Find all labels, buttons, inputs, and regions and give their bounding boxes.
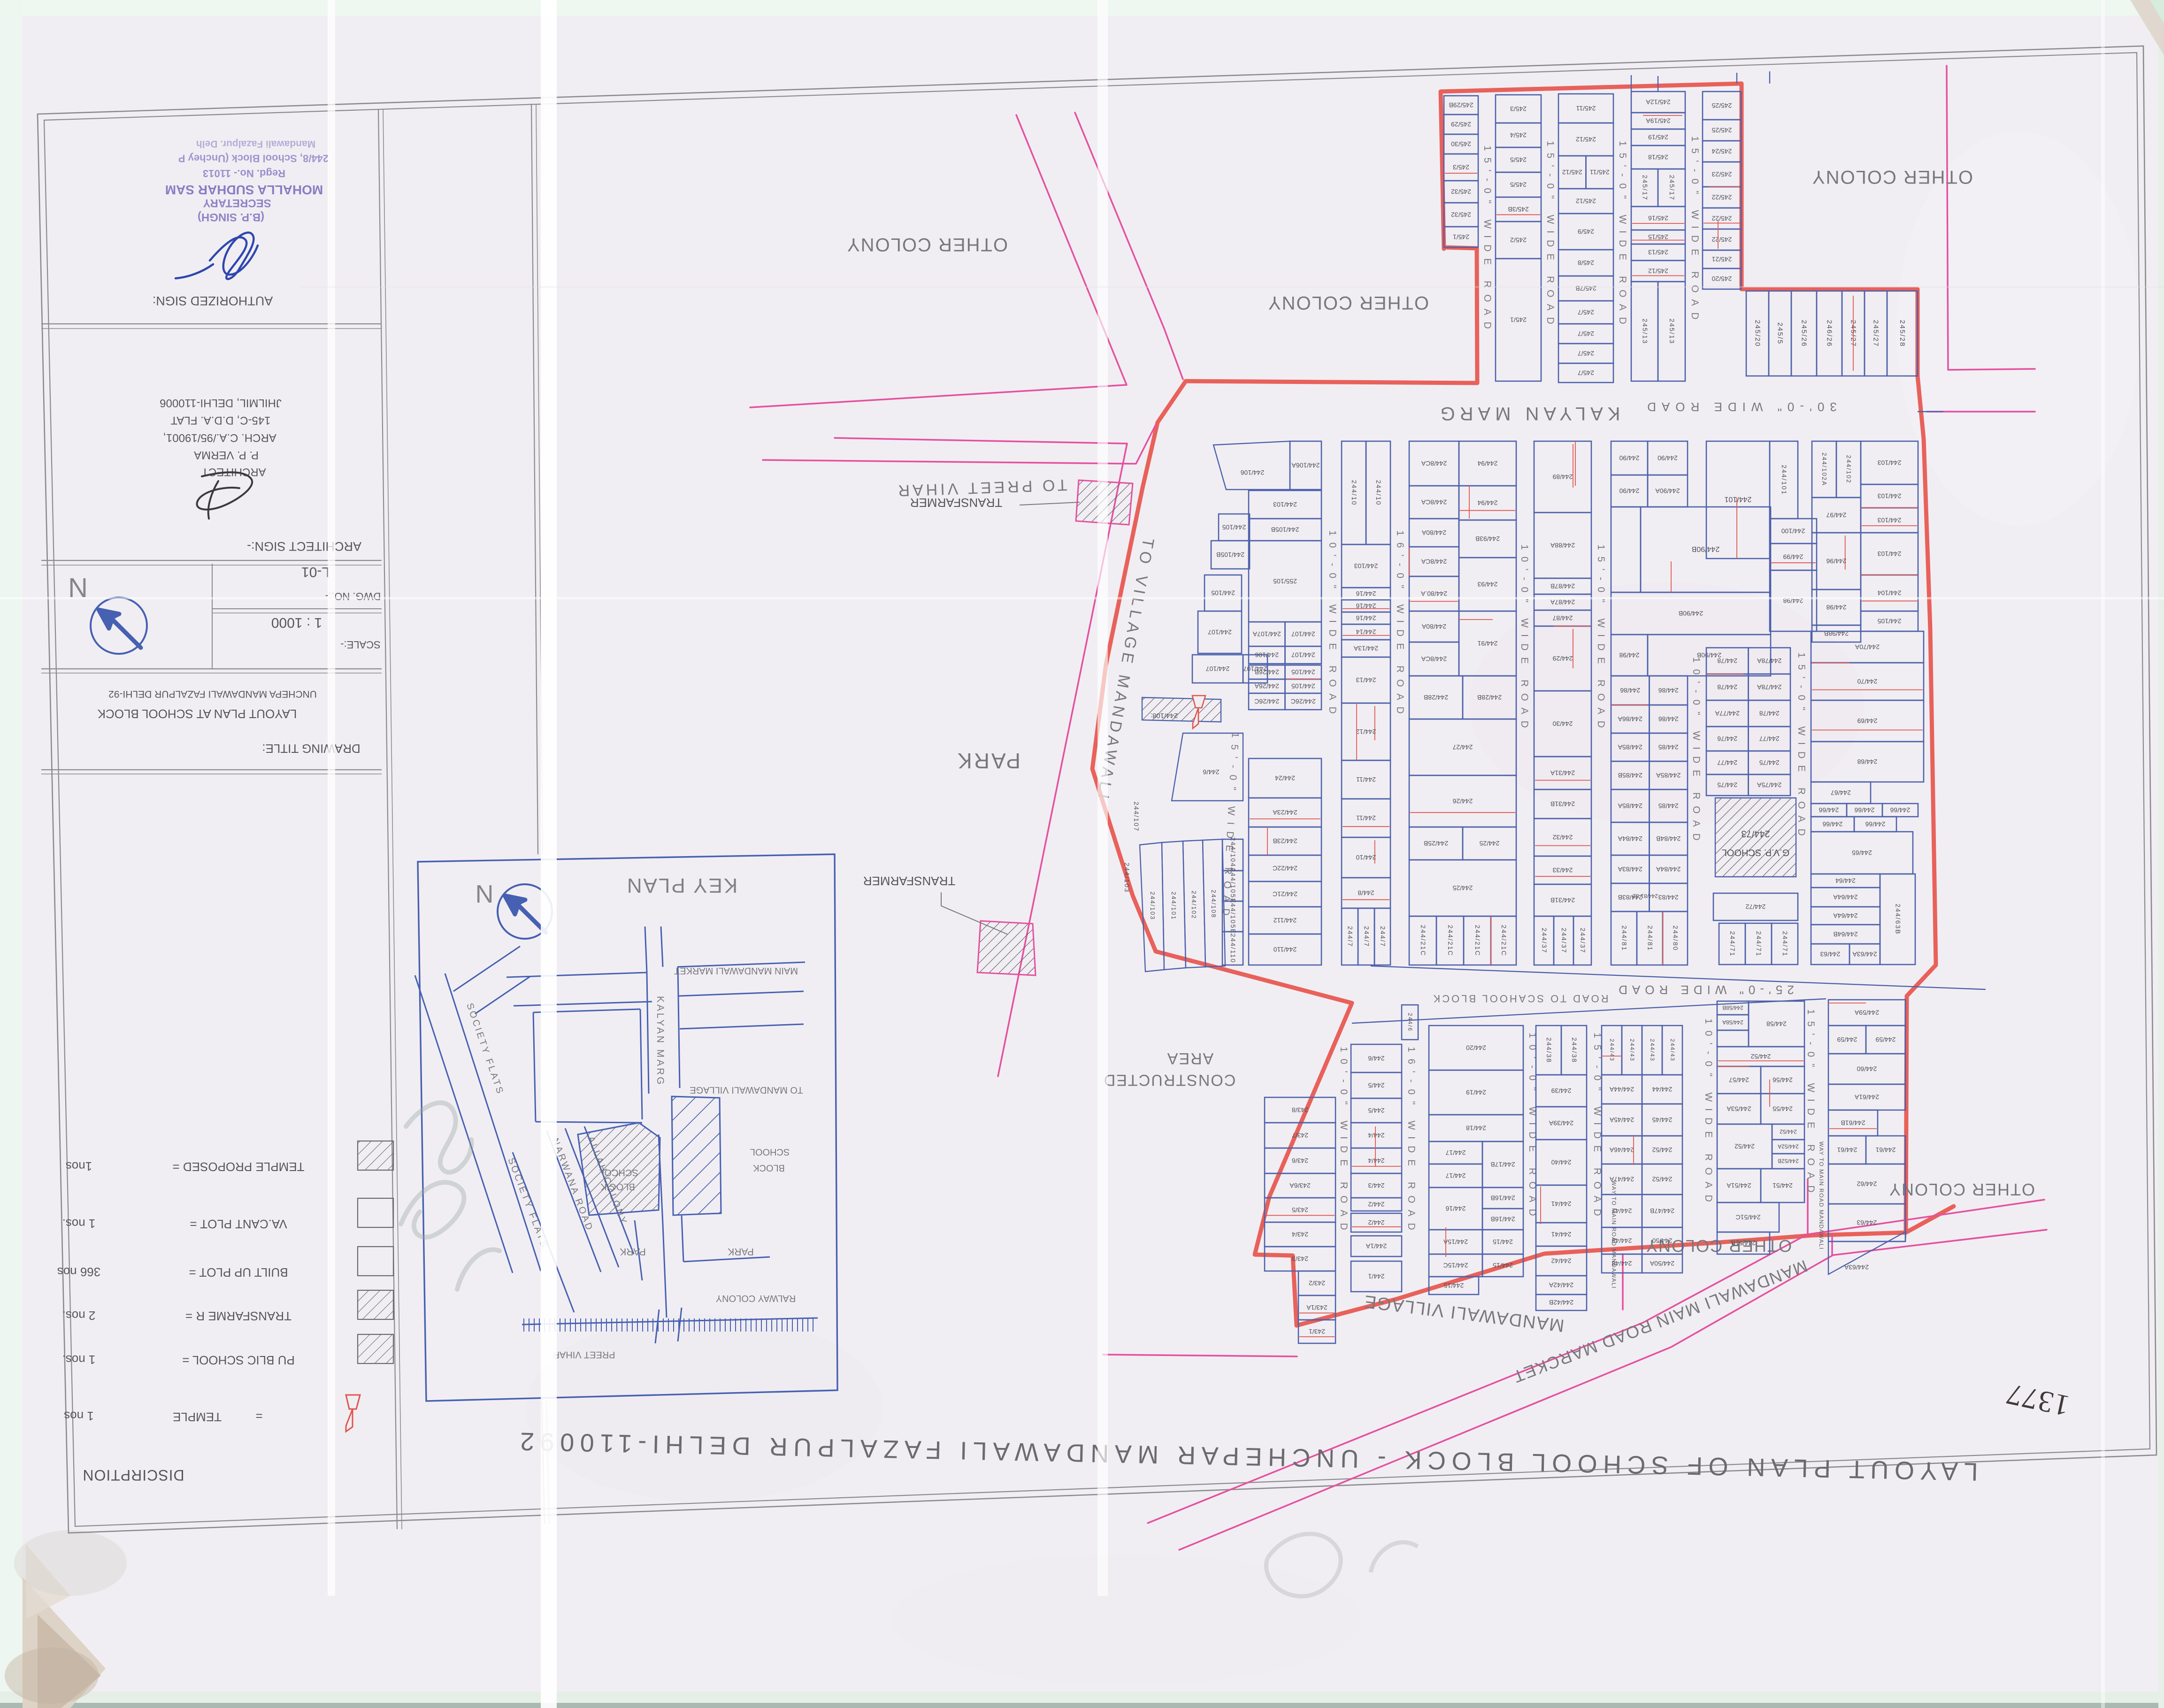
svg-text:244/28B: 244/28B: [1477, 694, 1502, 701]
svg-text:1 nos: 1 nos: [64, 1409, 94, 1423]
svg-text:245/13: 245/13: [1668, 319, 1676, 345]
svg-text:245/20: 245/20: [1711, 275, 1732, 283]
svg-text:244/68: 244/68: [1857, 758, 1877, 766]
svg-text:245/22: 245/22: [1711, 236, 1732, 243]
svg-text:145-C, D.D.A. FLAT: 145-C, D.D.A. FLAT: [170, 414, 270, 427]
svg-text:15'-0" WIDE ROAD: 15'-0" WIDE ROAD: [1545, 141, 1556, 331]
svg-text:243/6A: 243/6A: [1289, 1182, 1311, 1189]
svg-text:244/51A: 244/51A: [1727, 1182, 1751, 1189]
svg-text:G.V.P. SCHOOL: G.V.P. SCHOOL: [1722, 847, 1790, 858]
svg-text:KALYAN MARG: KALYAN MARG: [1435, 403, 1620, 424]
svg-text:PU BLIC SCHOOL =: PU BLIC SCHOOL =: [182, 1353, 295, 1367]
svg-text:244/99: 244/99: [1783, 553, 1803, 560]
svg-text:LAYOUT PLAN AT SCHOOL BLOCK: LAYOUT PLAN AT SCHOOL BLOCK: [97, 707, 297, 721]
svg-text:KEY PLAN: KEY PLAN: [626, 874, 737, 897]
svg-text:244/90B: 244/90B: [1692, 545, 1720, 553]
svg-text:244/7: 244/7: [1379, 926, 1387, 947]
svg-text:244/37: 244/37: [1541, 928, 1548, 954]
svg-text:244/85: 244/85: [1658, 743, 1679, 751]
svg-text:244/24: 244/24: [1275, 774, 1295, 782]
svg-text:244/85A: 244/85A: [1618, 802, 1642, 810]
svg-text:SCHOOL: SCHOOL: [750, 1147, 790, 1157]
svg-text:244/78: 244/78: [1717, 657, 1737, 665]
svg-text:KALYAN MARG: KALYAN MARG: [655, 996, 666, 1087]
svg-text:244/16: 244/16: [1445, 1205, 1466, 1212]
svg-text:244/91: 244/91: [1477, 640, 1497, 647]
svg-text:245/11: 245/11: [1576, 105, 1596, 112]
svg-text:244/87: 244/87: [1552, 614, 1573, 622]
svg-text:244/107A: 244/107A: [1252, 630, 1281, 638]
svg-text:244/8CA: 244/8CA: [1421, 655, 1447, 663]
svg-text:243/2: 243/2: [1309, 1279, 1325, 1287]
svg-text:244/17B: 244/17B: [1490, 1161, 1515, 1168]
svg-text:244/43: 244/43: [1649, 1039, 1656, 1062]
svg-text:244/75A: 244/75A: [1757, 781, 1782, 789]
svg-text:244/105: 244/105: [1291, 668, 1315, 676]
svg-text:245/27: 245/27: [1872, 320, 1880, 347]
svg-text:244/78A: 244/78A: [1757, 683, 1782, 691]
svg-text:255/105: 255/105: [1273, 577, 1297, 585]
svg-text:244/10: 244/10: [1351, 480, 1358, 506]
svg-text:(B.P. SINGH): (B.P. SINGH): [198, 211, 264, 223]
svg-text:245/22: 245/22: [1711, 193, 1732, 201]
svg-text:244/96: 244/96: [1826, 557, 1846, 565]
svg-text:244/26C: 244/26C: [1291, 697, 1316, 705]
svg-text:PARK: PARK: [620, 1246, 646, 1257]
svg-text:244/12: 244/12: [1356, 728, 1376, 735]
svg-text:244/23A: 244/23A: [1273, 809, 1297, 816]
svg-text:244/86: 244/86: [1658, 687, 1679, 694]
svg-text:16'-0" WIDE ROAD: 16'-0" WIDE ROAD: [1406, 1047, 1417, 1237]
svg-text:245/24: 245/24: [1711, 147, 1732, 155]
svg-text:WAY TO MAIN ROAD MANDAWALI: WAY TO MAIN ROAD MANDAWALI: [1818, 1141, 1825, 1250]
svg-text:JHILMIL, DELHI-110006: JHILMIL, DELHI-110006: [160, 397, 282, 409]
svg-text:245/29B: 245/29B: [1449, 101, 1473, 109]
svg-text:244/48: 244/48: [1611, 1237, 1632, 1244]
svg-text:=: =: [255, 1409, 262, 1423]
svg-text:245/23: 245/23: [1711, 170, 1732, 178]
svg-text:15'-0" WIDE ROAD: 15'-0" WIDE ROAD: [1689, 136, 1700, 326]
svg-text:245/30: 245/30: [1451, 140, 1471, 148]
svg-text:245/20: 245/20: [1754, 320, 1762, 347]
svg-text:244/39: 244/39: [1551, 1087, 1571, 1095]
svg-text:244/8: 244/8: [1358, 889, 1374, 896]
svg-text:244/63A: 244/63A: [1852, 950, 1877, 958]
svg-text:15'-0" WIDE ROAD: 15'-0" WIDE ROAD: [1617, 141, 1628, 331]
svg-text:244/52: 244/52: [1734, 1142, 1755, 1150]
svg-text:244/107: 244/107: [1291, 651, 1315, 659]
svg-text:244/40: 244/40: [1551, 1158, 1571, 1166]
svg-text:244/108:: 244/108:: [1151, 712, 1178, 720]
svg-text:SCALE:-: SCALE:-: [340, 639, 381, 651]
svg-text:244/64: 244/64: [1835, 877, 1856, 884]
svg-text:244/42B: 244/42B: [1549, 1299, 1573, 1306]
svg-text:244/87A: 244/87A: [1550, 598, 1575, 606]
svg-text:244/64A: 244/64A: [1833, 912, 1858, 919]
svg-text:245/3B: 245/3B: [1508, 206, 1528, 213]
svg-text:244/105: 244/105: [1222, 523, 1246, 531]
svg-text:244/28B: 244/28B: [1424, 694, 1448, 701]
svg-text:244/102A: 244/102A: [1821, 452, 1828, 486]
svg-text:RALWAY COLONY: RALWAY COLONY: [716, 1293, 796, 1303]
svg-text:244/81-82: 244/81-82: [1633, 893, 1658, 899]
svg-text:244/55: 244/55: [1773, 1105, 1793, 1112]
svg-text:244/41: 244/41: [1551, 1200, 1571, 1208]
svg-text:245/13: 245/13: [1648, 248, 1668, 256]
svg-text:TRANSFARME R =: TRANSFARME R =: [185, 1309, 292, 1323]
svg-text:244/51: 244/51: [1773, 1182, 1793, 1189]
svg-text:2 nos.: 2 nos.: [62, 1309, 96, 1323]
svg-text:244/52: 244/52: [1750, 1053, 1771, 1060]
svg-text:244/76: 244/76: [1717, 735, 1737, 743]
svg-text:244/90: 244/90: [1658, 454, 1678, 462]
svg-text:244/75: 244/75: [1759, 759, 1780, 766]
svg-text:244/71: 244/71: [1755, 931, 1763, 957]
svg-text:244/47: 244/47: [1611, 1207, 1632, 1215]
svg-text:244/63B: 244/63B: [1894, 904, 1902, 934]
svg-text:244/59A: 244/59A: [1854, 1009, 1879, 1016]
svg-text:244/105: 244/105: [1291, 682, 1315, 690]
svg-text:243/1: 243/1: [1309, 1328, 1325, 1335]
svg-text:ARCH. C.A./95/19001,: ARCH. C.A./95/19001,: [163, 431, 276, 444]
svg-text:243/8: 243/8: [1292, 1106, 1308, 1114]
svg-text:244/38: 244/38: [1545, 1037, 1553, 1063]
svg-text:VA.CANT PLOT =: VA.CANT PLOT =: [190, 1217, 287, 1231]
svg-text:BLOCK: BLOCK: [752, 1163, 784, 1173]
svg-text:244/94: 244/94: [1477, 460, 1497, 467]
svg-text:245/12A: 245/12A: [1646, 98, 1671, 106]
svg-text:AUTHORIZED SIGN:: AUTHORIZED SIGN:: [153, 294, 273, 308]
svg-text:244/15C: 244/15C: [1443, 1262, 1468, 1269]
svg-text:244/5: 244/5: [1368, 1081, 1384, 1089]
svg-text:244/7: 244/7: [1346, 926, 1354, 947]
svg-text:244/107: 244/107: [1208, 628, 1232, 636]
svg-text:244/112: 244/112: [1274, 917, 1297, 924]
svg-text:244/14: 244/14: [1356, 628, 1376, 636]
svg-text:244/17: 244/17: [1445, 1149, 1466, 1157]
svg-text:244/106: 244/106: [1240, 469, 1264, 476]
svg-text:244/110: 244/110: [1229, 934, 1237, 964]
svg-text:244/15: 244/15: [1443, 1282, 1464, 1289]
svg-text:244/84B: 244/84B: [1656, 835, 1681, 843]
svg-text:244/1A: 244/1A: [1366, 1242, 1387, 1250]
svg-text:244/75: 244/75: [1717, 781, 1737, 789]
svg-text:244/71: 244/71: [1781, 931, 1789, 957]
svg-text:Regd. No.- 11013: Regd. No.- 11013: [203, 168, 285, 179]
svg-text:244/85B: 244/85B: [1618, 772, 1642, 779]
svg-text:244/81: 244/81: [1620, 926, 1628, 951]
svg-text:244/105B: 244/105B: [1216, 551, 1244, 559]
svg-text:245/16: 245/16: [1648, 214, 1668, 222]
svg-text:244/52A: 244/52A: [1778, 1143, 1799, 1150]
svg-text:245/5: 245/5: [1510, 181, 1527, 188]
svg-text:L-01: L-01: [301, 564, 330, 580]
svg-text:244/58A: 244/58A: [1722, 1019, 1743, 1026]
svg-text:245/12: 245/12: [1576, 136, 1596, 143]
svg-text:244/103: 244/103: [1149, 892, 1156, 920]
svg-text:244/90B: 244/90B: [1679, 610, 1703, 617]
svg-text:244/64A: 244/64A: [1833, 893, 1858, 901]
svg-text:244/38: 244/38: [1571, 1037, 1578, 1063]
svg-text:245/8: 245/8: [1578, 259, 1594, 267]
svg-text:244/77: 244/77: [1759, 735, 1780, 743]
svg-text:245/19A: 245/19A: [1646, 117, 1671, 124]
svg-text:TRANSFARMER: TRANSFARMER: [863, 874, 955, 888]
svg-text:244/101: 244/101: [1724, 495, 1751, 503]
svg-text:SCHCOL: SCHCOL: [599, 1167, 638, 1178]
svg-text:PREET VIHAR: PREET VIHAR: [553, 1349, 615, 1360]
svg-text:244/48: 244/48: [1611, 1260, 1632, 1267]
svg-text:25'-0" WIDE ROAD: 25'-0" WIDE ROAD: [1614, 983, 1794, 997]
svg-text:244/30: 244/30: [1552, 720, 1573, 728]
svg-text:244/73: 244/73: [1741, 828, 1770, 839]
svg-text:OTHER COLONY: OTHER COLONY: [1811, 167, 1973, 187]
svg-text:ROAD TO SCAHOOL BLOCK: ROAD TO SCAHOOL BLOCK: [1431, 993, 1608, 1004]
svg-text:244/97: 244/97: [1826, 511, 1846, 519]
svg-text:244/78: 244/78: [1759, 710, 1780, 717]
svg-text:OTHER COLONY: OTHER COLONY: [1888, 1180, 2035, 1199]
svg-text:244/66: 244/66: [1865, 820, 1885, 828]
svg-text:245/7B: 245/7B: [1575, 284, 1596, 292]
svg-text:244/6: 244/6: [1203, 768, 1219, 776]
svg-text:245/32: 245/32: [1451, 188, 1471, 195]
svg-text:244/70A: 244/70A: [1855, 643, 1880, 651]
svg-text:244/80A: 244/80A: [1421, 623, 1446, 630]
svg-text:244/103: 244/103: [1877, 459, 1901, 467]
svg-text:244/47A: 244/47A: [1609, 1175, 1634, 1183]
svg-text:244/10: 244/10: [1356, 854, 1376, 861]
svg-text:244/43: 244/43: [1609, 1039, 1615, 1062]
svg-text:244/8CA: 244/8CA: [1421, 498, 1447, 506]
svg-text:244/11: 244/11: [1356, 814, 1376, 822]
svg-text:244/100: 244/100: [1781, 527, 1805, 535]
svg-text:244/43: 244/43: [1669, 1039, 1676, 1062]
svg-text:244/66: 244/66: [1819, 806, 1839, 814]
svg-text:245/7: 245/7: [1578, 330, 1594, 337]
svg-text:244/107: 244/107: [1205, 665, 1229, 673]
svg-text:244/106A: 244/106A: [1291, 461, 1320, 469]
svg-text:244/33: 244/33: [1552, 866, 1573, 874]
svg-text:244/70: 244/70: [1857, 678, 1877, 685]
svg-text:244/17: 244/17: [1445, 1172, 1466, 1180]
svg-text:244/8CA: 244/8CA: [1421, 558, 1447, 565]
svg-text:244/1: 244/1: [1368, 1272, 1384, 1280]
svg-text:15'-0" WIDE ROAD: 15'-0" WIDE ROAD: [1592, 1033, 1603, 1223]
svg-text:244/90: 244/90: [1619, 454, 1639, 462]
svg-text:244/93: 244/93: [1477, 581, 1497, 588]
svg-text:244/108: 244/108: [1210, 890, 1217, 919]
svg-text:244/80.A: 244/80.A: [1420, 590, 1447, 597]
svg-text:244/27: 244/27: [1452, 743, 1473, 751]
svg-text:245/21: 245/21: [1711, 255, 1732, 263]
svg-text:PARK: PARK: [728, 1246, 754, 1257]
svg-text:244/85: 244/85: [1658, 802, 1679, 810]
svg-text:P. P. VERMA: P. P. VERMA: [194, 449, 259, 461]
svg-text:AREA: AREA: [1166, 1049, 1214, 1067]
svg-text:244/107: 244/107: [1291, 630, 1315, 638]
svg-text:244/105: 244/105: [1877, 617, 1901, 625]
svg-text:244/101: 244/101: [1170, 892, 1177, 920]
svg-text:244/2: 244/2: [1368, 1201, 1384, 1208]
svg-text:TRANSFARMER: TRANSFARMER: [910, 496, 1002, 510]
svg-text:244/31B: 244/31B: [1550, 800, 1575, 808]
svg-text:245/11: 245/11: [1590, 169, 1610, 176]
svg-text:244/19: 244/19: [1466, 1088, 1486, 1096]
svg-text:244/8CA: 244/8CA: [1421, 460, 1447, 467]
svg-text:244/64B: 244/64B: [1833, 930, 1857, 938]
svg-text:244/63: 244/63: [1820, 950, 1840, 958]
svg-text:SECRETARY: SECRETARY: [203, 197, 271, 209]
svg-text:ARCHITECT SIGN:-: ARCHITECT SIGN:-: [247, 539, 361, 553]
svg-text:10'-0" WIDE ROAD: 10'-0" WIDE ROAD: [1519, 544, 1530, 735]
svg-text:244/57: 244/57: [1729, 1076, 1749, 1084]
svg-text:243/6: 243/6: [1292, 1157, 1308, 1164]
svg-text:244/21C: 244/21C: [1474, 925, 1481, 957]
svg-text:244/78: 244/78: [1717, 683, 1737, 691]
svg-text:244/13: 244/13: [1356, 676, 1376, 684]
svg-text:244/13A: 244/13A: [1353, 644, 1378, 652]
svg-text:244/87B: 244/87B: [1550, 582, 1575, 590]
svg-text:244/103: 244/103: [1354, 562, 1378, 570]
svg-text:244/2: 244/2: [1368, 1219, 1384, 1226]
svg-text:245/15: 245/15: [1648, 233, 1668, 241]
svg-text:243/4: 243/4: [1292, 1231, 1308, 1238]
svg-text:244/61: 244/61: [1837, 1146, 1857, 1154]
svg-text:TO MANDAWALI VILLAGE: TO MANDAWALI VILLAGE: [690, 1085, 803, 1095]
svg-text:BLOC K: BLOC K: [600, 1181, 635, 1192]
svg-text:15'-0" WIDE ROAD: 15'-0" WIDE ROAD: [1596, 544, 1606, 735]
svg-text:244/51B: 244/51B: [1731, 1239, 1756, 1247]
svg-text:16'-0" WIDE ROAD: 16'-0" WIDE ROAD: [1395, 530, 1405, 720]
svg-text:244/69: 244/69: [1857, 717, 1877, 725]
svg-text:245/17: 245/17: [1641, 175, 1649, 201]
svg-text:30'-0" WIDE ROAD: 30'-0" WIDE ROAD: [1642, 400, 1837, 414]
svg-text:244/83A: 244/83A: [1618, 865, 1642, 873]
svg-text:10'-0" WIDE ROAD: 10'-0" WIDE ROAD: [1338, 1047, 1349, 1237]
svg-text:244/66: 244/66: [1822, 820, 1842, 828]
svg-text:244/93B: 244/93B: [1475, 535, 1500, 543]
svg-text:244/105B: 244/105B: [1271, 526, 1299, 533]
svg-text:244/10: 244/10: [1375, 480, 1382, 506]
svg-text:244/58B: 244/58B: [1722, 1004, 1743, 1011]
svg-text:244/63: 244/63: [1857, 1219, 1877, 1226]
svg-text:244/103: 244/103: [1877, 492, 1901, 500]
svg-text:244/7: 244/7: [1363, 926, 1370, 947]
svg-text:244/50A: 244/50A: [1650, 1260, 1674, 1267]
svg-text:245/19: 245/19: [1648, 133, 1668, 141]
svg-text:244/45A: 244/45A: [1609, 1116, 1634, 1124]
svg-text:UNCHEPA MANDAWALI FAZALPUR DEL: UNCHEPA MANDAWALI FAZALPUR DELHI-92: [108, 689, 317, 699]
svg-text:244/103: 244/103: [1123, 863, 1131, 893]
svg-text:244/80A: 244/80A: [1421, 529, 1446, 536]
svg-text:15'-0" WIDE ROAD: 15'-0" WIDE ROAD: [1796, 652, 1807, 843]
svg-text:244/98: 244/98: [1826, 604, 1846, 611]
svg-text:244/41: 244/41: [1551, 1231, 1571, 1238]
svg-text:243/1A: 243/1A: [1306, 1304, 1328, 1311]
svg-text:244/5: 244/5: [1368, 1107, 1384, 1114]
svg-text:244/25: 244/25: [1479, 840, 1499, 847]
svg-text:244/45: 244/45: [1652, 1116, 1672, 1124]
svg-text:244/6: 244/6: [1368, 1055, 1384, 1062]
svg-text:244/15A: 244/15A: [1443, 1238, 1468, 1246]
svg-text:PARK: PARK: [956, 749, 1021, 773]
svg-text:245/7: 245/7: [1578, 308, 1594, 316]
svg-text:15'-0" WIDE ROAD: 15'-0" WIDE ROAD: [1482, 146, 1493, 336]
svg-text:244/101: 244/101: [1780, 465, 1788, 495]
svg-text:245/2: 245/2: [1510, 236, 1527, 244]
svg-text:Mandawali Fazalpur. Delh: Mandawali Fazalpur. Delh: [196, 138, 315, 149]
svg-text:OTHER COLONY: OTHER COLONY: [846, 234, 1008, 255]
svg-text:244/71: 244/71: [1729, 931, 1736, 957]
svg-text:244/61: 244/61: [1875, 1146, 1895, 1154]
svg-text:245/3: 245/3: [1453, 163, 1469, 171]
svg-text:245/28: 245/28: [1898, 320, 1906, 347]
svg-text:244/29: 244/29: [1552, 655, 1573, 662]
svg-text:244/16B: 244/16B: [1490, 1194, 1515, 1202]
svg-text:244/90: 244/90: [1619, 487, 1639, 495]
svg-text:244/52: 244/52: [1780, 1128, 1797, 1135]
svg-text:244/44A: 244/44A: [1609, 1086, 1634, 1093]
svg-text:244/110: 244/110: [1274, 946, 1297, 953]
svg-text:244/86: 244/86: [1658, 715, 1679, 723]
svg-text:244/26A: 244/26A: [1254, 682, 1279, 690]
svg-text:244/3: 244/3: [1368, 1182, 1384, 1189]
svg-text:244/16B: 244/16B: [1490, 1215, 1515, 1223]
svg-text:243/3: 243/3: [1292, 1255, 1308, 1263]
svg-text:243/5: 243/5: [1292, 1206, 1308, 1214]
svg-text:245/4: 245/4: [1510, 131, 1527, 139]
svg-text:244/81: 244/81: [1646, 926, 1654, 951]
svg-text:1 nos.: 1 nos.: [62, 1217, 96, 1231]
svg-text:245/22: 245/22: [1711, 214, 1732, 222]
svg-text:MOHALLA SUDHAR SAM: MOHALLA SUDHAR SAM: [165, 183, 323, 197]
svg-text:244/61B: 244/61B: [1841, 1119, 1865, 1126]
svg-text:244/6: 244/6: [1407, 1013, 1413, 1032]
svg-text:245/17: 245/17: [1668, 175, 1676, 201]
svg-text:245/7: 245/7: [1578, 350, 1594, 357]
svg-text:244/103: 244/103: [1877, 550, 1901, 558]
svg-text:TEMPLE PROPOSED =: TEMPLE PROPOSED =: [172, 1160, 304, 1174]
svg-text:244/86: 244/86: [1620, 687, 1640, 694]
svg-text:244/59: 244/59: [1875, 1036, 1895, 1043]
svg-text:244/84A: 244/84A: [1656, 865, 1681, 873]
svg-text:245/25: 245/25: [1711, 102, 1732, 109]
svg-text:OTHER COLONY: OTHER COLONY: [1267, 292, 1429, 313]
svg-text:244/46A: 244/46A: [1609, 1146, 1634, 1154]
svg-text:244/63A: 244/63A: [1844, 1264, 1869, 1271]
svg-text:244/59: 244/59: [1837, 1036, 1857, 1043]
svg-text:244/25: 244/25: [1452, 884, 1473, 892]
svg-text:244/52B: 244/52B: [1778, 1158, 1799, 1164]
svg-text:245/5: 245/5: [1510, 156, 1527, 163]
svg-text:244/16: 244/16: [1356, 602, 1376, 610]
svg-text:244/56: 244/56: [1773, 1076, 1793, 1084]
svg-text:244/21C: 244/21C: [1500, 925, 1508, 957]
svg-text:244/21C: 244/21C: [1447, 925, 1454, 957]
svg-text:244/102: 244/102: [1845, 455, 1852, 484]
svg-text:244/107: 244/107: [1133, 802, 1140, 832]
svg-text:244/22C: 244/22C: [1273, 865, 1297, 872]
svg-text:244/103: 244/103: [1273, 501, 1297, 508]
svg-text:245/32: 245/32: [1451, 211, 1471, 218]
svg-text:244/58: 244/58: [1766, 1020, 1787, 1027]
svg-text:244/26: 244/26: [1452, 797, 1473, 805]
svg-text:245/26: 245/26: [1800, 320, 1808, 347]
svg-text:244/89: 244/89: [1552, 473, 1573, 481]
svg-text:244/84A: 244/84A: [1618, 835, 1642, 843]
svg-text:244/65: 244/65: [1852, 849, 1872, 857]
svg-text:244/4: 244/4: [1368, 1132, 1384, 1139]
